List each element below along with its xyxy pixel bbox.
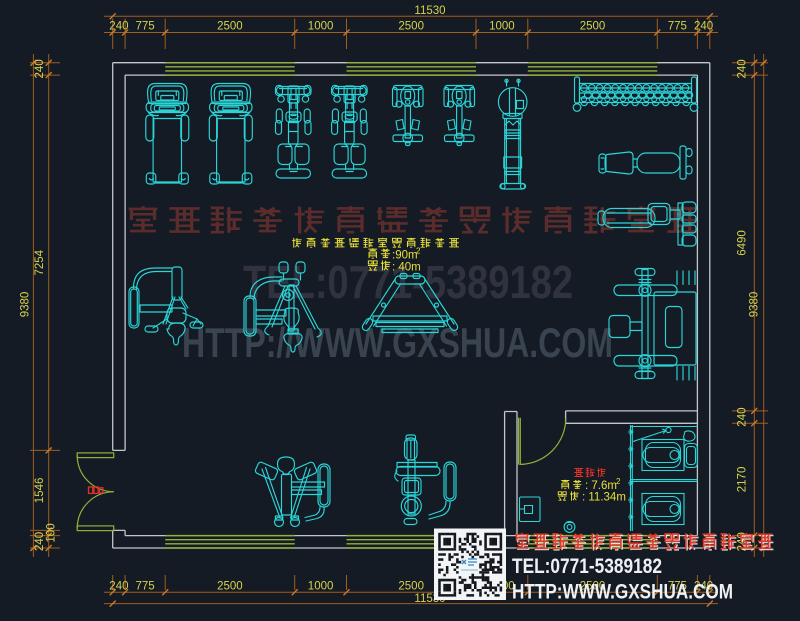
svg-text:1000: 1000 [489,21,515,33]
svg-text:1000: 1000 [308,581,334,593]
svg-text:: 11.34m: : 11.34m [582,492,626,504]
svg-text:HTTP:WWW.GXSHUA.COM: HTTP:WWW.GXSHUA.COM [512,581,733,604]
svg-text:2500: 2500 [398,21,424,33]
svg-text:775: 775 [136,581,155,593]
svg-text:240: 240 [109,581,128,593]
svg-text:240: 240 [34,532,46,551]
svg-text:2: 2 [616,477,621,486]
svg-text:9380: 9380 [20,292,32,318]
svg-text:11530: 11530 [414,5,445,17]
svg-text:: 7.6m: : 7.6m [585,480,617,492]
svg-text:240: 240 [694,21,713,33]
svg-text:240: 240 [737,59,749,78]
svg-text:100: 100 [46,523,58,542]
svg-text:9380: 9380 [749,292,761,318]
svg-text:1546: 1546 [34,478,46,504]
svg-text:775: 775 [136,21,155,33]
svg-text:2500: 2500 [580,21,606,33]
svg-text:240: 240 [109,21,128,33]
svg-text:2500: 2500 [217,581,243,593]
svg-text:1000: 1000 [308,21,334,33]
svg-text:2500: 2500 [217,21,243,33]
svg-text:: 40m: : 40m [392,262,421,274]
svg-text:775: 775 [668,21,687,33]
svg-text:2: 2 [416,247,421,256]
svg-text:240: 240 [737,408,749,427]
svg-text:7254: 7254 [34,249,46,275]
svg-text::90m: :90m [392,250,418,262]
svg-text:6490: 6490 [737,230,749,256]
svg-text:2170: 2170 [737,467,749,493]
svg-text:TEL:0771-5389182: TEL:0771-5389182 [512,555,662,578]
svg-text:2500: 2500 [398,581,424,593]
svg-text:240: 240 [34,59,46,78]
